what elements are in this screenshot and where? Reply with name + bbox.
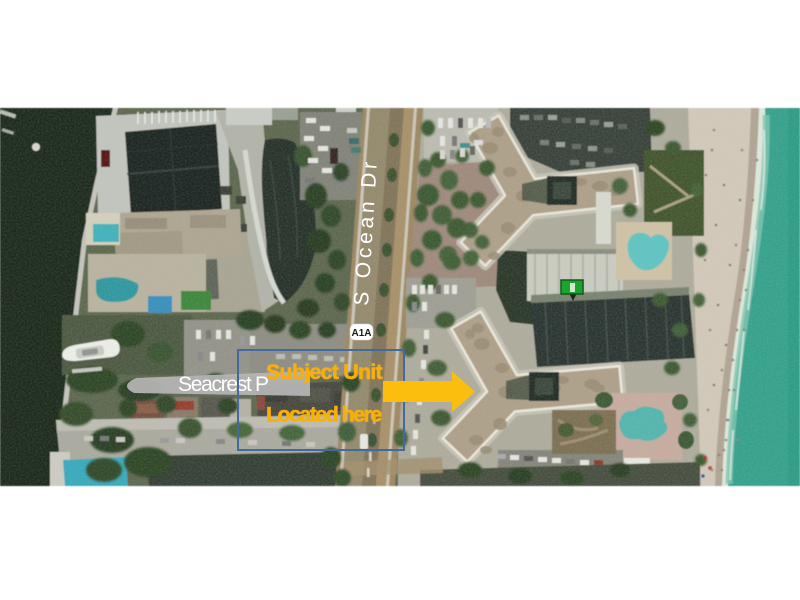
svg-text:A1A: A1A — [351, 328, 371, 339]
svg-text:Located here: Located here — [266, 403, 382, 427]
svg-text:Seacrest P: Seacrest P — [178, 373, 268, 396]
svg-text:Subject Unit: Subject Unit — [266, 360, 382, 384]
